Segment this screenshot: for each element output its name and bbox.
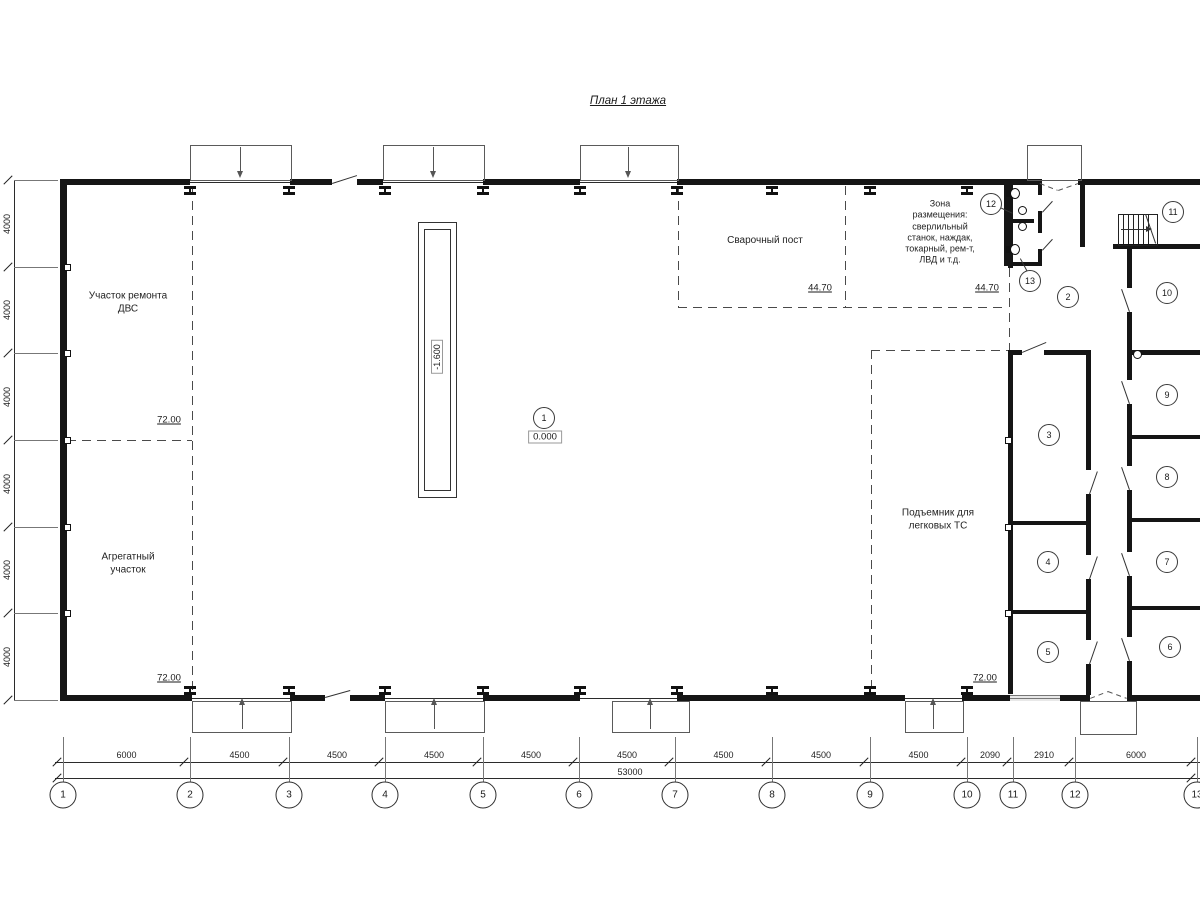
room-tag-11: 11: [1162, 201, 1184, 223]
grid-axis-bubble-3: 3: [276, 782, 303, 809]
elevation-mark: 72.00: [973, 673, 997, 684]
column-mark: [64, 350, 71, 357]
zone-boundary-dashed: [192, 186, 193, 695]
gate-direction-arrow-shaft: [433, 147, 434, 172]
dimension-label: 4000: [2, 213, 12, 233]
door-swing-dashed: [1040, 183, 1058, 191]
wall-segment: [677, 695, 905, 701]
dimension-label: 6000: [116, 750, 136, 760]
grid-axis-bubble-1: 1: [50, 782, 77, 809]
column-mark: [1005, 610, 1012, 617]
gate-direction-arrow-head: [625, 171, 631, 178]
room-tag-13: 13: [1019, 270, 1041, 292]
zone-boundary-dashed: [871, 350, 872, 694]
toilet-tank: [1006, 246, 1010, 253]
extension-line: [579, 737, 580, 783]
steel-column-mark: [766, 686, 778, 695]
wall-segment: [1078, 179, 1200, 185]
wall-segment: [1130, 518, 1200, 522]
column-mark: [64, 437, 71, 444]
zone-boundary-dashed: [1009, 268, 1010, 350]
steel-column-mark: [184, 186, 196, 195]
dimension-label: 4500: [617, 750, 637, 760]
zone-boundary-dashed: [871, 350, 1008, 351]
dimension-tick: [3, 348, 12, 357]
extension-line: [1197, 737, 1198, 783]
window-in-wall: [1010, 695, 1060, 701]
zone-label-welding: Сварочный пост: [727, 235, 803, 248]
door-leaf-line: [325, 690, 350, 698]
extension-line: [190, 737, 191, 783]
wall-segment: [1086, 664, 1091, 695]
steel-column-mark: [864, 686, 876, 695]
wall-segment: [1080, 181, 1085, 247]
column-mark: [64, 610, 71, 617]
dimension-tick: [3, 175, 12, 184]
wall-segment: [60, 695, 192, 701]
gate-direction-arrow-head: [647, 698, 653, 705]
wall-segment: [1086, 350, 1091, 470]
extension-line: [14, 353, 58, 354]
door-swing-dashed: [1108, 691, 1127, 699]
dimension-label: 4500: [908, 750, 928, 760]
dimension-label: 4000: [2, 300, 12, 320]
door-leaf-line: [332, 175, 357, 184]
zone-boundary-dashed: [845, 186, 846, 307]
floor-plan-drawing: План 1 этажа -1.600Участок ремонта ДВСАг…: [0, 0, 1200, 900]
dimension-label: 4000: [2, 386, 12, 406]
extension-line: [385, 737, 386, 783]
dimension-tick: [3, 608, 12, 617]
zone-label-engine-repair: Участок ремонта ДВС: [89, 291, 167, 316]
wall-segment: [1038, 211, 1042, 233]
room-tag-7: 7: [1156, 551, 1178, 573]
steel-column-mark: [184, 686, 196, 695]
dimension-label: 2910: [1034, 750, 1054, 760]
door-leaf-line: [1089, 641, 1098, 664]
wall-segment: [290, 695, 325, 701]
dimension-label: 4500: [521, 750, 541, 760]
door-leaf-line: [1022, 342, 1046, 353]
door-leaf-line: [1089, 471, 1098, 494]
steel-column-mark: [574, 686, 586, 695]
steel-column-mark: [864, 186, 876, 195]
room-tag-2: 2: [1057, 286, 1079, 308]
door-leaf-line: [1042, 239, 1053, 251]
gate-direction-arrow-head: [239, 698, 245, 705]
column-mark: [64, 524, 71, 531]
column-mark: [64, 264, 71, 271]
steel-column-mark: [671, 186, 683, 195]
gate-leaf-line: [383, 182, 483, 183]
gate-direction-arrow-shaft: [933, 704, 934, 729]
wall-segment: [1127, 245, 1132, 288]
wall-segment: [1044, 350, 1090, 355]
grid-axis-bubble-11: 11: [1000, 782, 1027, 809]
wall-segment: [1130, 435, 1200, 439]
dimension-tick: [3, 695, 12, 704]
room-tag-9: 9: [1156, 384, 1178, 406]
wall-segment: [1127, 695, 1200, 701]
grid-axis-bubble-13: 13: [1184, 782, 1200, 809]
entrance-porch: [612, 701, 690, 733]
steel-column-mark: [477, 686, 489, 695]
zone-boundary-dashed: [67, 440, 192, 441]
door-leaf-line: [1042, 201, 1053, 213]
stair-arrow-head: [1146, 226, 1152, 232]
stair-direction-arrow: [1121, 229, 1147, 230]
entrance-porch: [1080, 701, 1137, 735]
extension-line: [483, 737, 484, 783]
room-tag-1: 1: [533, 407, 555, 429]
grid-axis-bubble-2: 2: [177, 782, 204, 809]
door-swing-dashed: [1090, 691, 1108, 699]
steel-column-mark: [379, 686, 391, 695]
wall-segment: [677, 179, 1040, 185]
sink-icon: [1133, 350, 1142, 359]
steel-column-mark: [766, 186, 778, 195]
dimension-total-label: 53000: [617, 767, 642, 777]
toilet-icon: [1010, 244, 1020, 255]
dimension-label: 4000: [2, 560, 12, 580]
grid-axis-bubble-9: 9: [857, 782, 884, 809]
sink-icon: [1018, 222, 1027, 231]
dimension-tick: [3, 262, 12, 271]
elevation-mark: 72.00: [157, 673, 181, 684]
door-leaf-line: [1121, 467, 1130, 490]
dimension-label: 4500: [811, 750, 831, 760]
column-mark: [1005, 524, 1012, 531]
grid-axis-bubble-12: 12: [1062, 782, 1089, 809]
gate-direction-arrow-head: [930, 698, 936, 705]
gate-direction-arrow-shaft: [242, 704, 243, 729]
grid-axis-bubble-4: 4: [372, 782, 399, 809]
toilet-icon: [1010, 188, 1020, 199]
room-tag-3: 3: [1038, 424, 1060, 446]
grid-axis-bubble-6: 6: [566, 782, 593, 809]
elevation-mark: 72.00: [157, 415, 181, 426]
gate-direction-arrow-shaft: [434, 704, 435, 729]
wall-segment: [1008, 350, 1022, 355]
column-mark: [1005, 437, 1012, 444]
door-swing-dashed: [1058, 183, 1078, 191]
extension-line: [14, 440, 58, 441]
wall-segment: [350, 695, 385, 701]
door-leaf-line: [1121, 553, 1130, 576]
steel-column-mark: [283, 186, 295, 195]
dimension-label: 4000: [2, 646, 12, 666]
dimension-tick: [3, 435, 12, 444]
extension-line: [870, 737, 871, 783]
gate-direction-arrow-shaft: [650, 704, 651, 729]
dimension-tick: [3, 522, 12, 531]
elevation-mark: 44.70: [975, 283, 999, 294]
sink-icon: [1018, 206, 1027, 215]
wall-segment: [290, 179, 332, 185]
wall-segment: [357, 179, 383, 185]
elevation-mark: 44.70: [808, 283, 832, 294]
wall-segment: [483, 695, 580, 701]
wall-segment: [1010, 610, 1088, 614]
room-tag-4: 4: [1037, 551, 1059, 573]
room-tag-8: 8: [1156, 466, 1178, 488]
zone-boundary-dashed: [678, 307, 1008, 308]
wall-segment: [1130, 606, 1200, 610]
dimension-label: 4500: [327, 750, 347, 760]
dimension-label: 4500: [229, 750, 249, 760]
dimension-label: 6000: [1126, 750, 1146, 760]
dimension-label: 4000: [2, 473, 12, 493]
wall-segment: [1127, 661, 1132, 695]
extension-line: [14, 267, 58, 268]
gate-direction-arrow-head: [430, 171, 436, 178]
dimension-label: 4500: [424, 750, 444, 760]
wall-segment: [1010, 521, 1088, 525]
grid-axis-bubble-10: 10: [954, 782, 981, 809]
wall-segment: [962, 695, 1010, 701]
dimension-line: [55, 778, 1200, 779]
extension-line: [14, 700, 58, 701]
steel-column-mark: [379, 186, 391, 195]
gate-leaf-line: [580, 698, 677, 699]
extension-line: [289, 737, 290, 783]
gate-leaf-line: [190, 182, 290, 183]
door-leaf-line: [1089, 556, 1098, 579]
zone-boundary-dashed: [678, 186, 679, 307]
extension-line: [967, 737, 968, 783]
wall-segment: [1038, 249, 1042, 262]
gate-direction-arrow-shaft: [628, 147, 629, 172]
elevation-mark-pit: -1.600: [431, 340, 443, 374]
grid-axis-bubble-7: 7: [662, 782, 689, 809]
extension-line: [675, 737, 676, 783]
gate-canopy: [1027, 145, 1082, 181]
dimension-label: 2090: [980, 750, 1000, 760]
room-tag-10: 10: [1156, 282, 1178, 304]
room-tag-6: 6: [1159, 636, 1181, 658]
steel-column-mark: [961, 186, 973, 195]
wall-segment: [1127, 312, 1132, 380]
door-leaf-line: [1121, 289, 1130, 312]
elevation-mark-floor: 0.000: [528, 431, 562, 444]
steel-column-mark: [671, 686, 683, 695]
extension-line: [1013, 737, 1014, 783]
grid-axis-bubble-5: 5: [470, 782, 497, 809]
extension-line: [1075, 737, 1076, 783]
extension-line: [63, 737, 64, 783]
grid-axis-bubble-8: 8: [759, 782, 786, 809]
gate-leaf-line: [580, 182, 677, 183]
steel-column-mark: [283, 686, 295, 695]
gate-direction-arrow-head: [431, 698, 437, 705]
extension-line: [14, 527, 58, 528]
room-tag-12: 12: [980, 193, 1002, 215]
steel-column-mark: [477, 186, 489, 195]
drawing-title: План 1 этажа: [590, 95, 666, 107]
dimension-line: [55, 762, 1200, 763]
door-leaf-line: [1121, 381, 1130, 404]
extension-line: [14, 613, 58, 614]
entrance-porch: [385, 701, 485, 733]
zone-label-car-lift: Подъемник для легковых ТС: [902, 508, 974, 533]
wall-segment: [483, 179, 580, 185]
dimension-label: 4500: [713, 750, 733, 760]
steel-column-mark: [961, 686, 973, 695]
extension-line: [772, 737, 773, 783]
zone-label-equipment: Зона размещения: сверлильный станок, наж…: [905, 198, 974, 266]
wall-segment: [60, 179, 190, 185]
toilet-tank: [1006, 190, 1010, 197]
wall-segment: [1038, 179, 1042, 195]
entrance-porch: [905, 701, 964, 733]
gate-direction-arrow-shaft: [240, 147, 241, 172]
gate-direction-arrow-head: [237, 171, 243, 178]
extension-line: [14, 180, 58, 181]
door-leaf-line: [1121, 638, 1130, 661]
zone-label-aggregate: Агрегатный участок: [101, 552, 154, 577]
steel-column-mark: [574, 186, 586, 195]
room-tag-5: 5: [1037, 641, 1059, 663]
